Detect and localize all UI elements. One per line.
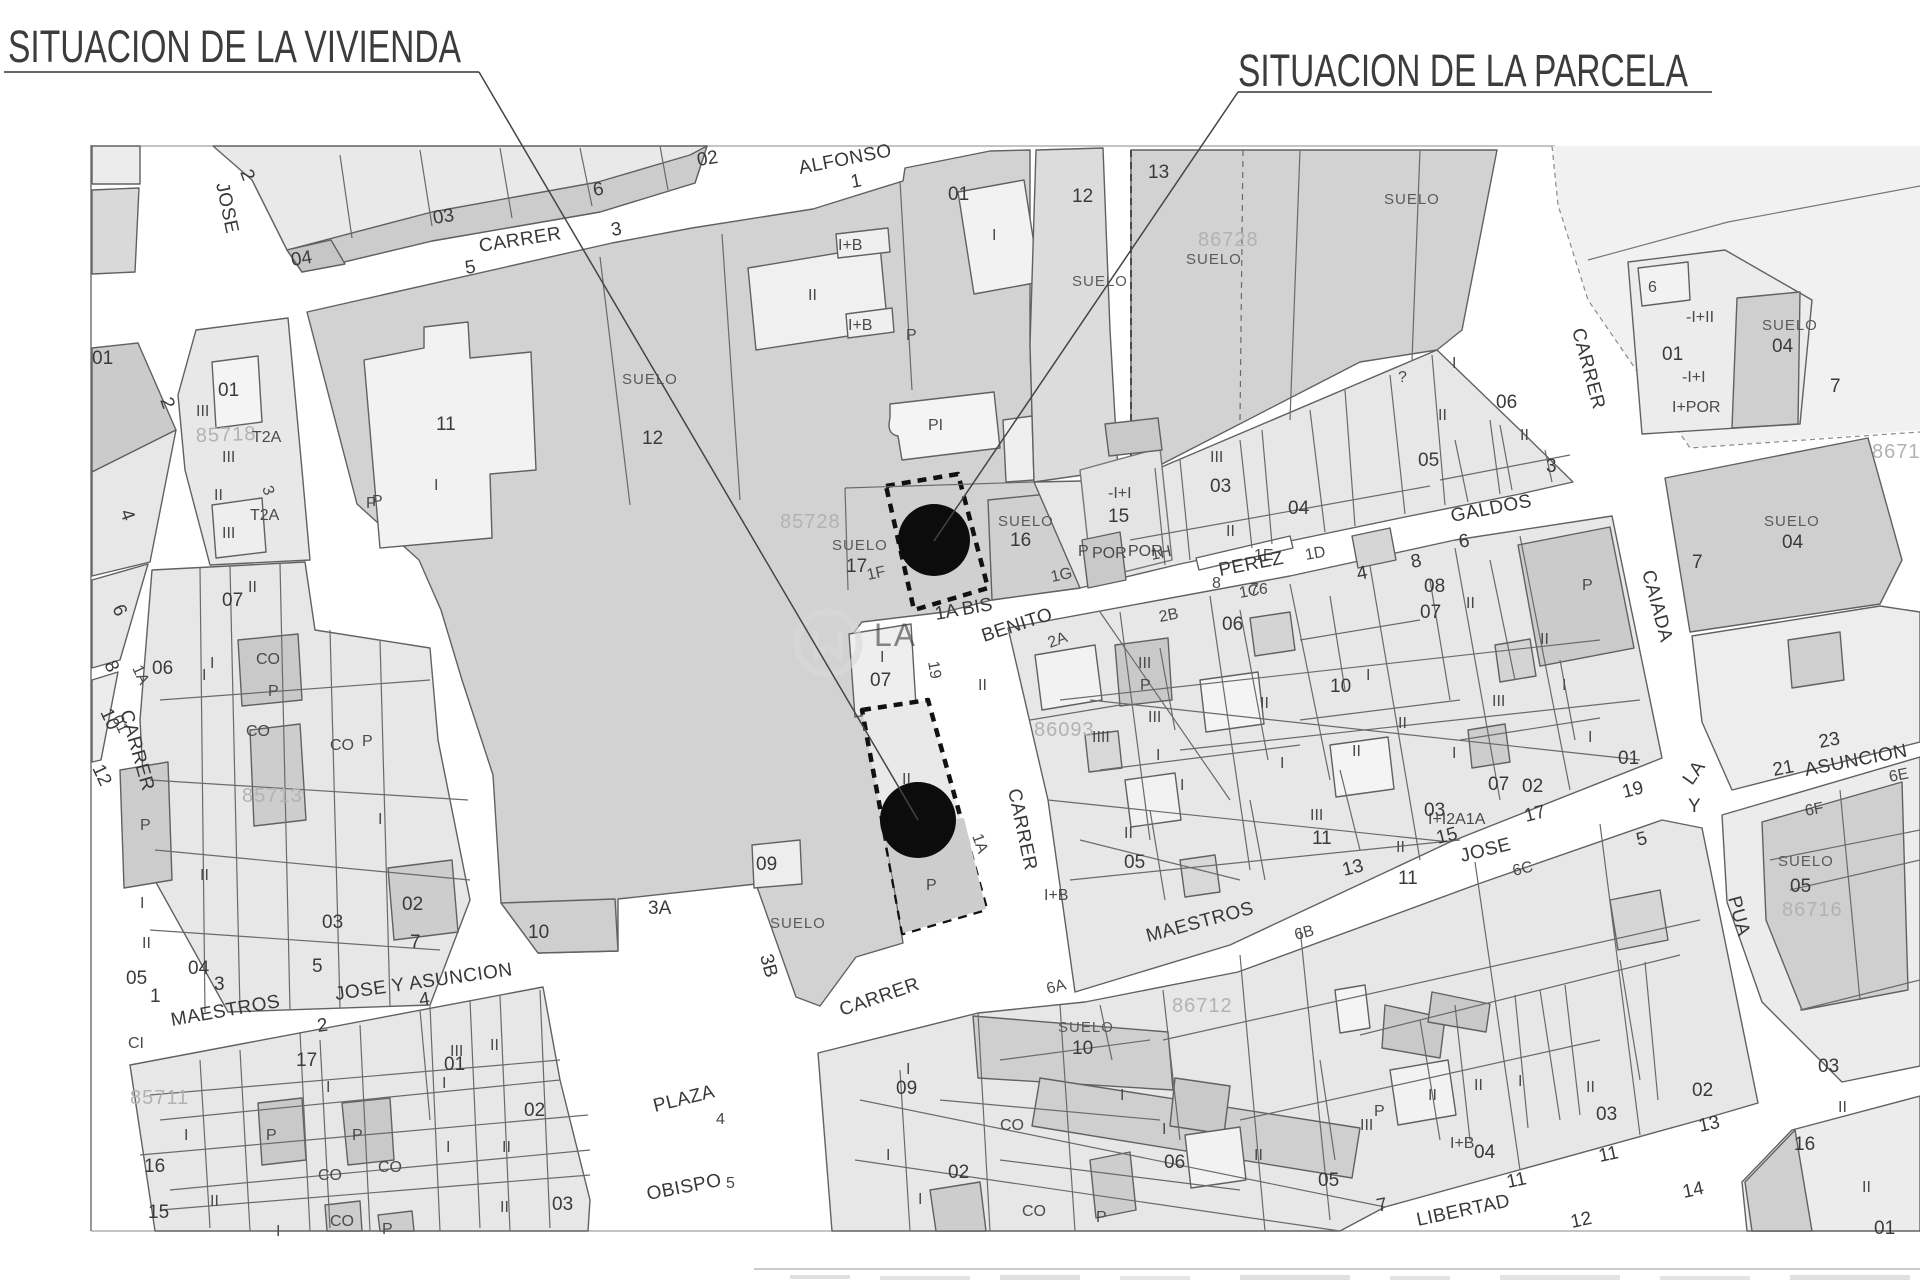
- svg-text:01: 01: [92, 348, 113, 369]
- svg-text:19: 19: [924, 660, 944, 681]
- svg-text:P: P: [1096, 1209, 1107, 1226]
- svg-text:10: 10: [1072, 1038, 1093, 1059]
- svg-text:05: 05: [1318, 1170, 1339, 1191]
- svg-text:III: III: [1492, 693, 1505, 710]
- svg-text:04: 04: [188, 958, 210, 979]
- svg-text:11: 11: [436, 414, 456, 435]
- svg-text:11: 11: [1312, 828, 1332, 849]
- svg-text:II: II: [1586, 1079, 1595, 1096]
- svg-text:05: 05: [1124, 852, 1145, 873]
- svg-text:04: 04: [1772, 336, 1794, 357]
- svg-text:?: ?: [1398, 369, 1407, 386]
- svg-text:CO: CO: [378, 1159, 402, 1176]
- svg-text:II: II: [502, 1139, 511, 1156]
- svg-text:II: II: [902, 771, 911, 788]
- svg-text:P: P: [1078, 543, 1089, 560]
- svg-text:13: 13: [1148, 162, 1169, 183]
- svg-text:09: 09: [756, 854, 777, 875]
- svg-text:10: 10: [1330, 676, 1351, 697]
- svg-text:I: I: [446, 1139, 450, 1156]
- svg-text:05: 05: [126, 968, 147, 989]
- svg-text:SUELO: SUELO: [622, 371, 678, 388]
- svg-text:07: 07: [1488, 774, 1509, 795]
- svg-text:POR: POR: [1092, 545, 1127, 562]
- svg-text:II: II: [1466, 595, 1475, 612]
- svg-text:I+B: I+B: [838, 237, 862, 254]
- svg-text:III: III: [450, 1043, 463, 1060]
- svg-text:I: I: [1280, 755, 1284, 772]
- svg-text:SITUACION DE LA VIVIENDA: SITUACION DE LA VIVIENDA: [8, 21, 461, 72]
- svg-text:II: II: [1862, 1179, 1871, 1196]
- svg-text:03: 03: [1424, 800, 1445, 821]
- svg-text:SUELO: SUELO: [770, 915, 826, 932]
- svg-text:CO: CO: [330, 737, 354, 754]
- svg-text:1D: 1D: [1304, 544, 1327, 564]
- svg-text:86716: 86716: [1782, 899, 1843, 921]
- svg-text:07: 07: [870, 670, 891, 691]
- svg-text:03: 03: [431, 205, 455, 229]
- svg-text:5: 5: [726, 1175, 735, 1192]
- svg-text:I: I: [140, 895, 144, 912]
- svg-text:SITUACION DE LA PARCELA: SITUACION DE LA PARCELA: [1238, 45, 1688, 96]
- svg-text:-I+I: -I+I: [1682, 369, 1706, 386]
- svg-text:I: I: [906, 1061, 910, 1078]
- svg-text:85728: 85728: [780, 511, 841, 533]
- svg-text:II: II: [1438, 407, 1447, 424]
- svg-text:23: 23: [1817, 728, 1842, 753]
- svg-text:SUELO: SUELO: [1384, 191, 1440, 208]
- svg-text:SUELO: SUELO: [1764, 513, 1820, 530]
- svg-text:II: II: [1474, 1077, 1483, 1094]
- svg-text:LA: LA: [874, 617, 917, 653]
- svg-text:P: P: [926, 877, 937, 894]
- svg-text:I: I: [992, 227, 996, 244]
- svg-text:I: I: [378, 811, 382, 828]
- svg-text:II: II: [1398, 715, 1407, 732]
- svg-text:12: 12: [642, 428, 663, 449]
- svg-text:P: P: [266, 1127, 277, 1144]
- svg-text:I: I: [210, 655, 214, 672]
- svg-text:03: 03: [322, 912, 343, 933]
- svg-text:I: I: [1162, 1121, 1166, 1138]
- svg-text:05: 05: [1790, 876, 1811, 897]
- svg-text:III: III: [1360, 1117, 1373, 1134]
- svg-text:04: 04: [1782, 532, 1804, 553]
- svg-text:85718: 85718: [195, 423, 256, 447]
- svg-text:II: II: [490, 1037, 499, 1054]
- svg-text:II: II: [1254, 1147, 1263, 1164]
- svg-text:SUELO: SUELO: [1762, 317, 1818, 334]
- svg-text:T2A: T2A: [250, 507, 280, 524]
- svg-text:I: I: [184, 1127, 188, 1144]
- svg-text:7: 7: [1830, 376, 1841, 397]
- svg-text:II: II: [1396, 839, 1405, 856]
- svg-text:86093: 86093: [1034, 719, 1095, 741]
- svg-text:16: 16: [1794, 1134, 1815, 1155]
- svg-text:II: II: [1260, 695, 1269, 712]
- svg-text:02: 02: [695, 147, 719, 171]
- svg-text:08: 08: [1424, 576, 1445, 597]
- svg-text:II: II: [1540, 631, 1549, 648]
- svg-text:II: II: [1428, 1087, 1437, 1104]
- svg-text:04: 04: [289, 247, 314, 271]
- svg-text:III: III: [222, 449, 235, 466]
- svg-text:I: I: [442, 1075, 446, 1092]
- svg-text:06: 06: [152, 658, 173, 679]
- svg-text:-I+I: -I+I: [1108, 485, 1132, 502]
- svg-text:I: I: [1120, 1087, 1124, 1104]
- svg-text:II: II: [500, 1199, 509, 1216]
- svg-text:I+B: I+B: [848, 317, 872, 334]
- svg-text:T2A: T2A: [252, 429, 282, 446]
- svg-text:I: I: [886, 1147, 890, 1164]
- svg-text:II: II: [142, 935, 151, 952]
- svg-text:4: 4: [716, 1111, 725, 1128]
- svg-text:I: I: [202, 667, 206, 684]
- svg-text:P: P: [268, 683, 279, 700]
- svg-text:01: 01: [1874, 1218, 1895, 1239]
- svg-text:CO: CO: [246, 723, 270, 740]
- svg-text:P: P: [362, 733, 373, 750]
- svg-text:86728: 86728: [1198, 229, 1259, 251]
- svg-text:01: 01: [218, 380, 239, 401]
- svg-text:II: II: [214, 487, 223, 504]
- svg-text:3A: 3A: [648, 898, 672, 919]
- svg-text:86712: 86712: [1172, 995, 1233, 1017]
- svg-text:12: 12: [1072, 186, 1093, 207]
- svg-text:P: P: [906, 327, 917, 344]
- svg-text:SUELO: SUELO: [832, 537, 888, 554]
- svg-text:15: 15: [1108, 506, 1129, 527]
- svg-text:II: II: [1226, 523, 1235, 540]
- svg-text:I: I: [1588, 729, 1592, 746]
- svg-text:I: I: [918, 1191, 922, 1208]
- svg-text:06: 06: [1164, 1152, 1185, 1173]
- svg-text:8671: 8671: [1872, 441, 1920, 463]
- svg-text:02: 02: [1692, 1080, 1713, 1101]
- svg-text:IIII: IIII: [1092, 729, 1110, 746]
- svg-text:P: P: [1374, 1103, 1385, 1120]
- svg-text:II: II: [200, 867, 209, 884]
- svg-text:09: 09: [896, 1078, 917, 1099]
- svg-text:I+B: I+B: [1450, 1135, 1474, 1152]
- svg-text:II: II: [1124, 825, 1133, 842]
- svg-text:03: 03: [552, 1194, 573, 1215]
- svg-text:02: 02: [524, 1100, 545, 1121]
- svg-text:II: II: [1352, 743, 1361, 760]
- svg-text:1C: 1C: [1238, 582, 1261, 602]
- svg-text:I: I: [1156, 747, 1160, 764]
- svg-text:03: 03: [1210, 476, 1231, 497]
- svg-text:III: III: [1138, 655, 1151, 672]
- svg-text:I: I: [1366, 667, 1370, 684]
- svg-text:P: P: [352, 1127, 363, 1144]
- svg-text:Y: Y: [1688, 796, 1701, 817]
- svg-text:02: 02: [948, 1162, 969, 1183]
- svg-text:6: 6: [1648, 279, 1657, 296]
- svg-text:05: 05: [1418, 450, 1439, 471]
- svg-text:04: 04: [1288, 498, 1310, 519]
- svg-text:7: 7: [1692, 552, 1703, 573]
- svg-text:7: 7: [410, 932, 421, 953]
- svg-text:85713: 85713: [242, 785, 303, 807]
- svg-text:06: 06: [1496, 392, 1517, 413]
- svg-text:SUELO: SUELO: [998, 513, 1054, 530]
- svg-text:3: 3: [214, 974, 225, 995]
- svg-text:I: I: [1180, 777, 1184, 794]
- svg-text:CO: CO: [330, 1213, 354, 1230]
- svg-text:13: 13: [1697, 1112, 1722, 1137]
- svg-text:SUELO: SUELO: [1072, 273, 1128, 290]
- svg-text:17: 17: [296, 1050, 317, 1071]
- svg-text:15: 15: [148, 1202, 169, 1223]
- svg-text:I: I: [1562, 677, 1566, 694]
- svg-text:III: III: [196, 403, 209, 420]
- svg-text:CO: CO: [1000, 1117, 1024, 1134]
- svg-text:II: II: [248, 579, 257, 596]
- svg-text:P: P: [140, 817, 151, 834]
- svg-text:02: 02: [402, 894, 423, 915]
- svg-text:I: I: [1518, 1073, 1522, 1090]
- svg-text:P: P: [1582, 577, 1593, 594]
- svg-text:03: 03: [1596, 1104, 1617, 1125]
- svg-text:-I+II: -I+II: [1686, 309, 1714, 326]
- svg-text:04: 04: [1474, 1142, 1496, 1163]
- svg-text:CI: CI: [128, 1035, 144, 1052]
- svg-text:03: 03: [1818, 1056, 1839, 1077]
- svg-text:I: I: [880, 649, 884, 666]
- svg-text:I: I: [434, 477, 438, 494]
- svg-text:01: 01: [1662, 344, 1683, 365]
- svg-text:21: 21: [1771, 756, 1796, 781]
- svg-text:P: P: [1140, 677, 1151, 694]
- svg-text:07: 07: [1420, 602, 1441, 623]
- svg-text:01: 01: [1618, 748, 1639, 769]
- svg-text:III: III: [1310, 807, 1323, 824]
- svg-text:II: II: [210, 1193, 219, 1210]
- svg-text:I: I: [1452, 355, 1456, 372]
- svg-text:10: 10: [528, 922, 549, 943]
- svg-text:I+POR: I+POR: [1672, 399, 1720, 416]
- svg-text:CO: CO: [318, 1167, 342, 1184]
- svg-text:16: 16: [1010, 530, 1031, 551]
- svg-text:II: II: [978, 677, 987, 694]
- svg-text:P: P: [382, 1221, 393, 1238]
- svg-text:II: II: [1520, 427, 1529, 444]
- svg-text:I: I: [276, 1223, 280, 1240]
- svg-text:I: I: [326, 1079, 330, 1096]
- svg-text:I+B: I+B: [1044, 887, 1068, 904]
- svg-text:II: II: [808, 287, 817, 304]
- svg-text:I: I: [1452, 745, 1456, 762]
- svg-text:II: II: [1838, 1099, 1847, 1116]
- svg-text:CO: CO: [256, 651, 280, 668]
- svg-text:07: 07: [222, 590, 243, 611]
- svg-text:III: III: [222, 525, 235, 542]
- svg-text:1: 1: [150, 986, 161, 1007]
- svg-text:III: III: [1210, 449, 1223, 466]
- svg-text:11: 11: [1398, 868, 1418, 889]
- svg-text:17: 17: [846, 556, 867, 577]
- svg-text:3: 3: [1546, 456, 1557, 477]
- svg-text:SUELO: SUELO: [1778, 853, 1834, 870]
- svg-text:PI: PI: [928, 417, 943, 434]
- svg-text:CO: CO: [1022, 1203, 1046, 1220]
- svg-text:06: 06: [1222, 614, 1243, 635]
- svg-text:P: P: [366, 495, 377, 512]
- svg-text:SUELO: SUELO: [1058, 1019, 1114, 1036]
- svg-text:III: III: [1148, 709, 1161, 726]
- svg-text:5: 5: [312, 956, 323, 977]
- svg-text:12: 12: [1569, 1208, 1594, 1233]
- svg-text:85711: 85711: [130, 1087, 189, 1109]
- svg-text:SUELO: SUELO: [1186, 251, 1242, 268]
- svg-text:16: 16: [144, 1156, 165, 1177]
- svg-text:02: 02: [1522, 776, 1543, 797]
- svg-text:6F: 6F: [1804, 800, 1826, 820]
- svg-text:01: 01: [948, 184, 969, 205]
